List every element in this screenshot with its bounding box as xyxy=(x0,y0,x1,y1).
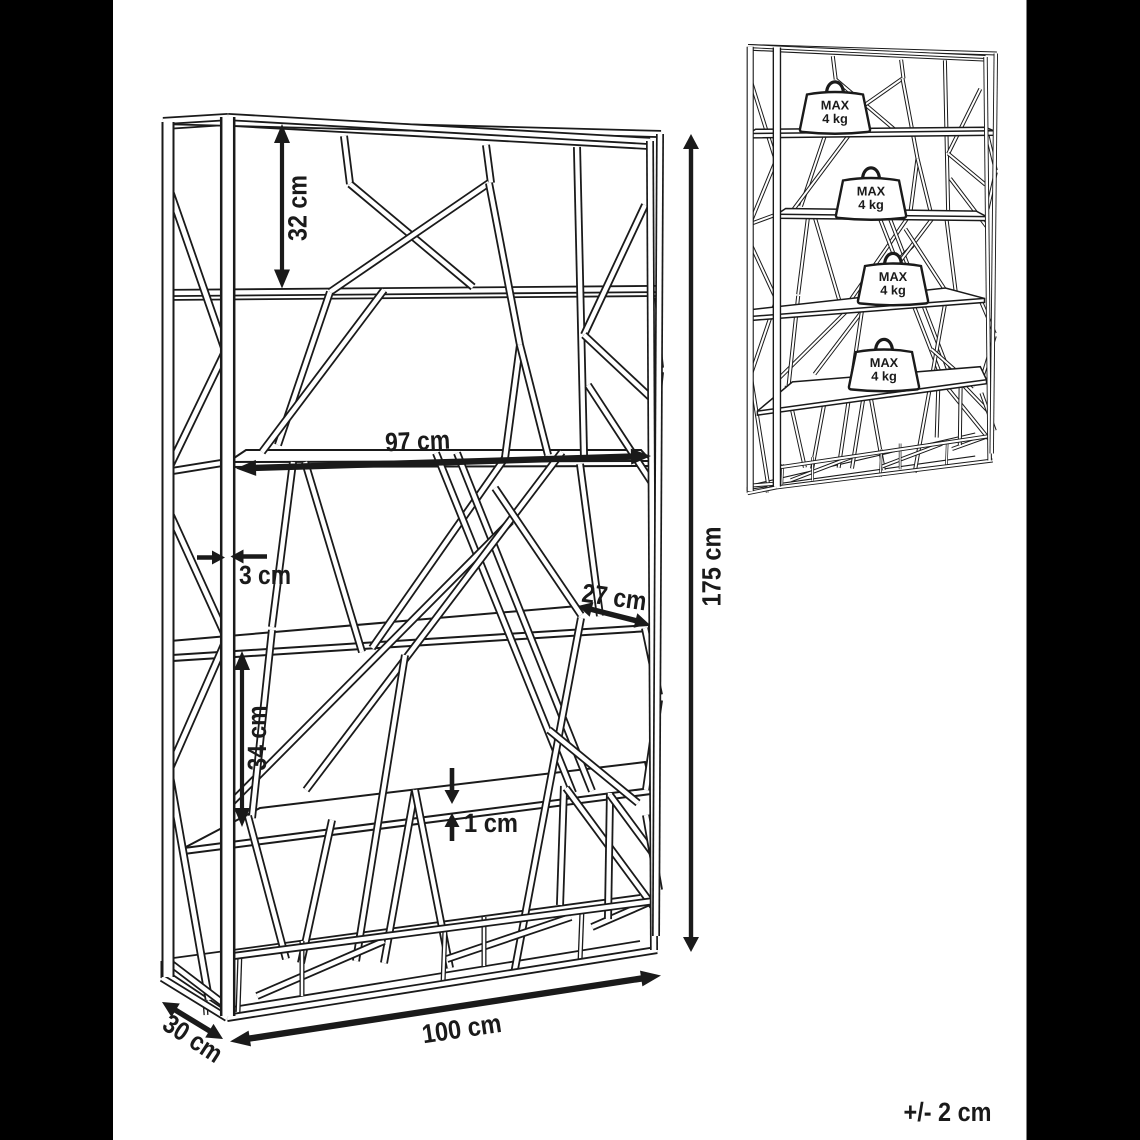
svg-text:32 cm: 32 cm xyxy=(283,175,313,241)
svg-text:4 kg: 4 kg xyxy=(871,369,897,384)
svg-text:175 cm: 175 cm xyxy=(697,527,727,607)
svg-text:34 cm: 34 cm xyxy=(242,706,272,771)
svg-text:+/- 2 cm: +/- 2 cm xyxy=(904,1097,992,1127)
svg-text:1 cm: 1 cm xyxy=(464,808,518,838)
svg-text:4 kg: 4 kg xyxy=(858,197,884,212)
svg-text:3 cm: 3 cm xyxy=(239,560,291,590)
svg-text:97 cm: 97 cm xyxy=(384,425,450,458)
svg-text:4 kg: 4 kg xyxy=(822,111,848,126)
svg-text:4 kg: 4 kg xyxy=(880,283,906,298)
